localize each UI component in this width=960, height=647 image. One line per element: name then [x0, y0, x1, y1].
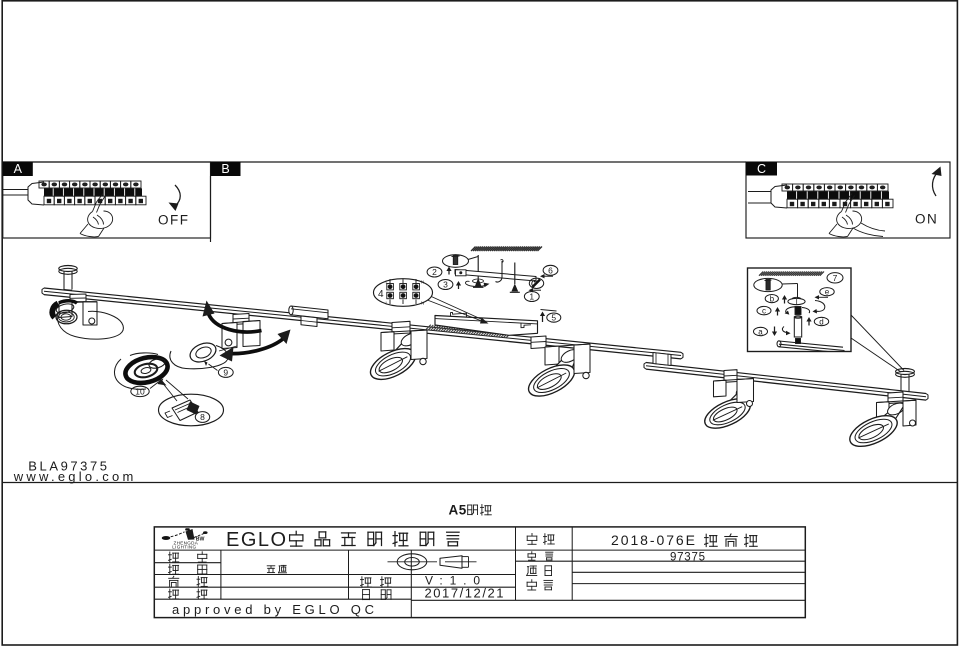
svg-text:3: 3 [443, 280, 448, 290]
svg-text:10: 10 [135, 387, 145, 397]
svg-text:8: 8 [200, 412, 205, 422]
svg-text:LIGHTING: LIGHTING [172, 545, 196, 550]
svg-text:OFF: OFF [158, 213, 190, 228]
svg-text:1: 1 [529, 292, 534, 302]
svg-text:2: 2 [432, 267, 437, 277]
svg-text:B: B [221, 162, 229, 176]
svg-text:A5: A5 [449, 503, 467, 518]
svg-text:www.eglo.com: www.eglo.com [13, 469, 134, 484]
svg-text:97375: 97375 [670, 551, 705, 563]
svg-text:A: A [14, 162, 23, 176]
svg-text:b: b [770, 295, 775, 304]
svg-text:d: d [819, 317, 823, 326]
svg-text:a: a [758, 327, 763, 336]
svg-text:5: 5 [551, 313, 556, 323]
svg-text:c: c [762, 307, 766, 316]
svg-text:2017/12/21: 2017/12/21 [425, 586, 504, 601]
svg-text:7: 7 [833, 273, 838, 283]
svg-text:4: 4 [378, 289, 384, 300]
svg-text:6: 6 [548, 265, 553, 275]
svg-text:C: C [757, 162, 766, 176]
svg-text:N: N [421, 301, 424, 306]
svg-text:N: N [421, 280, 424, 285]
svg-text:2018-076E: 2018-076E [611, 532, 695, 548]
svg-text:ON: ON [915, 212, 938, 227]
svg-text:e: e [825, 288, 830, 297]
svg-text:9: 9 [223, 368, 228, 378]
svg-text:EGLO: EGLO [226, 529, 286, 551]
